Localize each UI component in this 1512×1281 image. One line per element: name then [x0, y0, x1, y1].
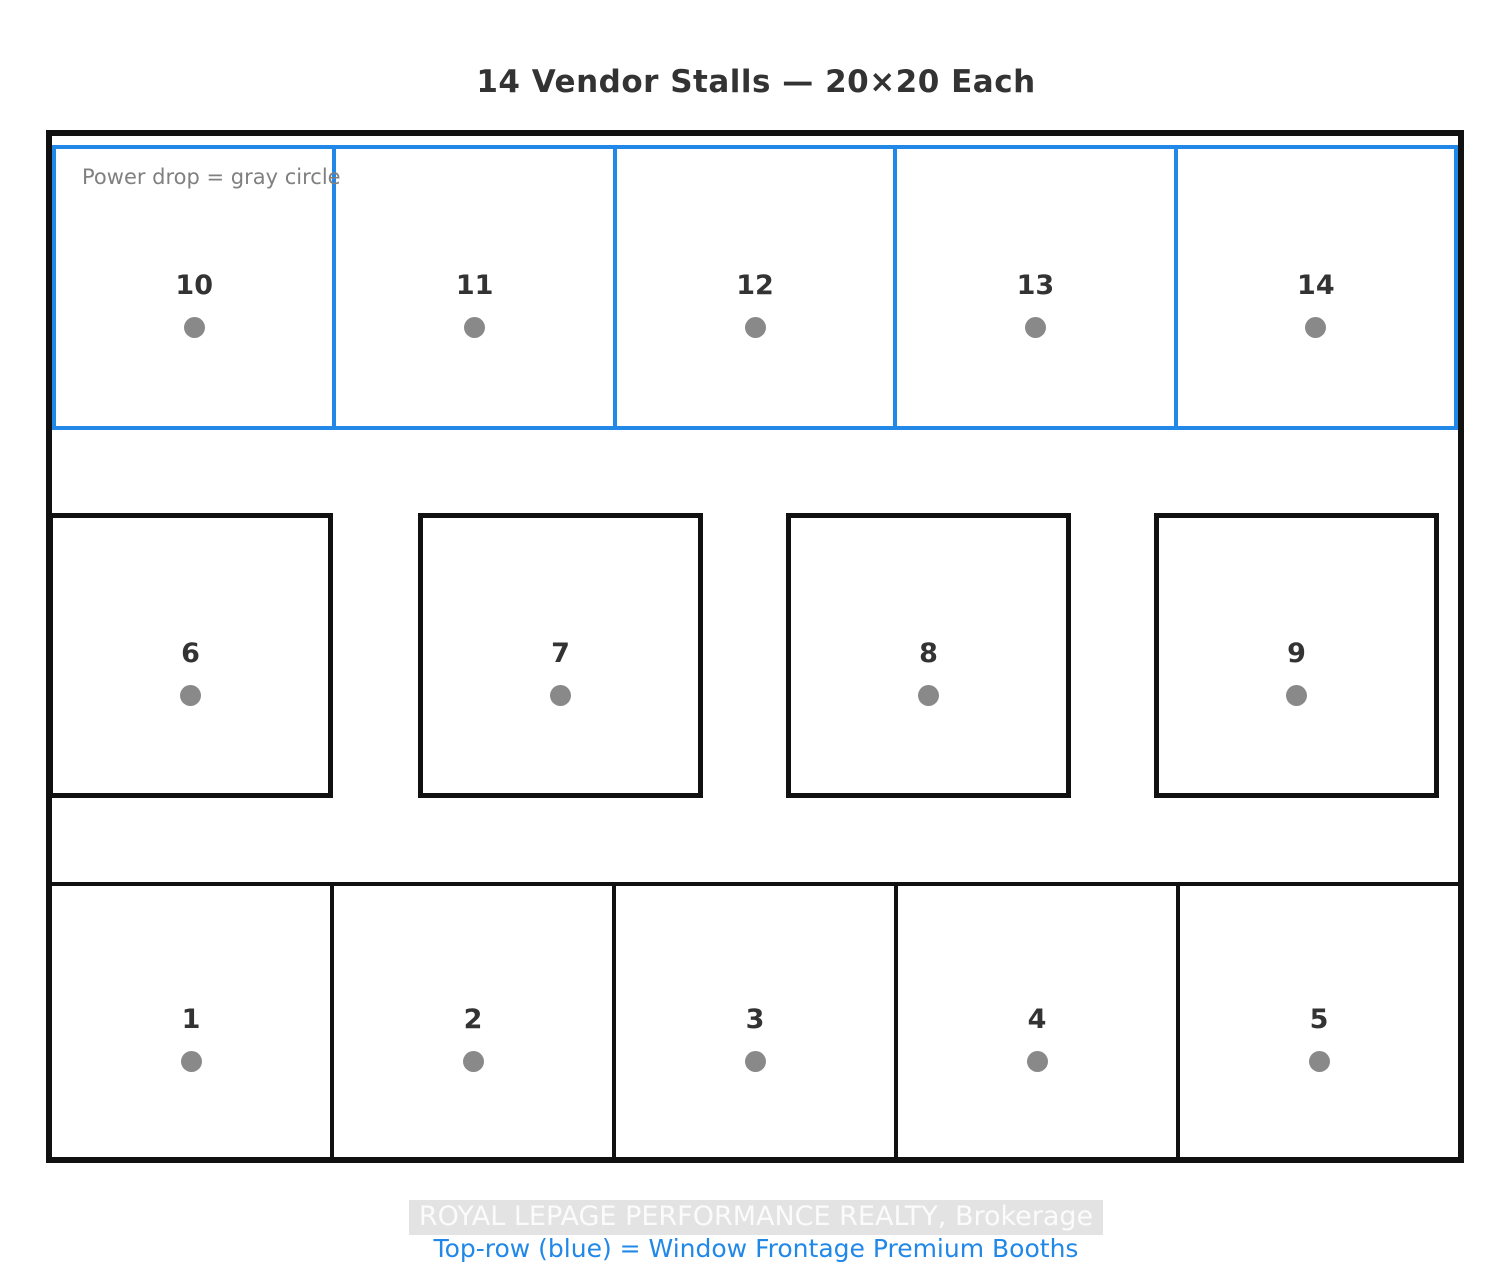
power-drop-icon	[184, 317, 205, 338]
power-drop-icon	[918, 685, 939, 706]
stall-number-label: 14	[1297, 272, 1335, 299]
stall-content: 2	[334, 903, 612, 1174]
stall-content: 10	[56, 166, 332, 443]
stall-number-label: 8	[919, 640, 938, 667]
power-drop-icon	[181, 1051, 202, 1072]
stall-content: 4	[898, 903, 1176, 1174]
power-drop-icon	[1305, 317, 1326, 338]
power-drop-icon	[180, 685, 201, 706]
stall-content: 6	[53, 535, 328, 810]
stall-number-label: 10	[175, 272, 213, 299]
stall-4: 4	[898, 886, 1180, 1157]
stall-content: 1	[52, 903, 330, 1174]
page-title: 14 Vendor Stalls — 20×20 Each	[0, 64, 1512, 100]
stall-2: 2	[334, 886, 616, 1157]
stall-8: 8	[786, 513, 1071, 798]
power-drop-icon	[1027, 1051, 1048, 1072]
stall-7: 7	[418, 513, 703, 798]
stall-number-label: 6	[181, 640, 200, 667]
power-drop-icon	[1286, 685, 1307, 706]
power-drop-icon	[745, 317, 766, 338]
power-drop-icon	[463, 1051, 484, 1072]
brokerage-watermark-text: ROYAL LEPAGE PERFORMANCE REALTY, Brokera…	[409, 1200, 1103, 1235]
stall-13: 13	[897, 149, 1177, 426]
premium-row: Power drop = gray circle 10 11 12	[52, 145, 1458, 430]
stall-content: 13	[897, 166, 1173, 443]
stall-content: 14	[1178, 166, 1454, 443]
stall-number-label: 1	[182, 1006, 201, 1033]
building-outline: Power drop = gray circle 10 11 12	[46, 130, 1464, 1163]
floor-plan-page: 14 Vendor Stalls — 20×20 Each Power drop…	[0, 0, 1512, 1281]
power-drop-legend: Power drop = gray circle	[82, 165, 341, 189]
stall-number-label: 2	[464, 1006, 483, 1033]
stall-content: 7	[423, 535, 698, 810]
bottom-row: 1 2 3 4	[52, 882, 1458, 1157]
stall-content: 5	[1180, 903, 1458, 1174]
stall-number-label: 9	[1287, 640, 1306, 667]
stall-number-label: 4	[1028, 1006, 1047, 1033]
stall-content: 8	[791, 535, 1066, 810]
stall-12: 12	[617, 149, 897, 426]
stall-9: 9	[1154, 513, 1439, 798]
brokerage-watermark: ROYAL LEPAGE PERFORMANCE REALTY, Brokera…	[0, 1201, 1512, 1232]
stall-content: 9	[1159, 535, 1434, 810]
stall-1: 1	[52, 886, 334, 1157]
stall-number-label: 11	[456, 272, 494, 299]
stall-number-label: 13	[1017, 272, 1055, 299]
stall-content: 12	[617, 166, 893, 443]
stall-content: 11	[336, 166, 612, 443]
premium-booths-note: Top-row (blue) = Window Frontage Premium…	[0, 1234, 1512, 1263]
power-drop-icon	[1025, 317, 1046, 338]
stall-number-label: 5	[1310, 1006, 1329, 1033]
stall-5: 5	[1180, 886, 1458, 1157]
stall-number-label: 3	[746, 1006, 765, 1033]
stall-number-label: 12	[736, 272, 774, 299]
stall-3: 3	[616, 886, 898, 1157]
stall-6: 6	[48, 513, 333, 798]
stall-10: 10	[56, 149, 336, 426]
stall-11: 11	[336, 149, 616, 426]
power-drop-icon	[464, 317, 485, 338]
power-drop-icon	[745, 1051, 766, 1072]
power-drop-icon	[1309, 1051, 1330, 1072]
stall-14: 14	[1178, 149, 1454, 426]
stall-number-label: 7	[551, 640, 570, 667]
power-drop-icon	[550, 685, 571, 706]
stall-content: 3	[616, 903, 894, 1174]
